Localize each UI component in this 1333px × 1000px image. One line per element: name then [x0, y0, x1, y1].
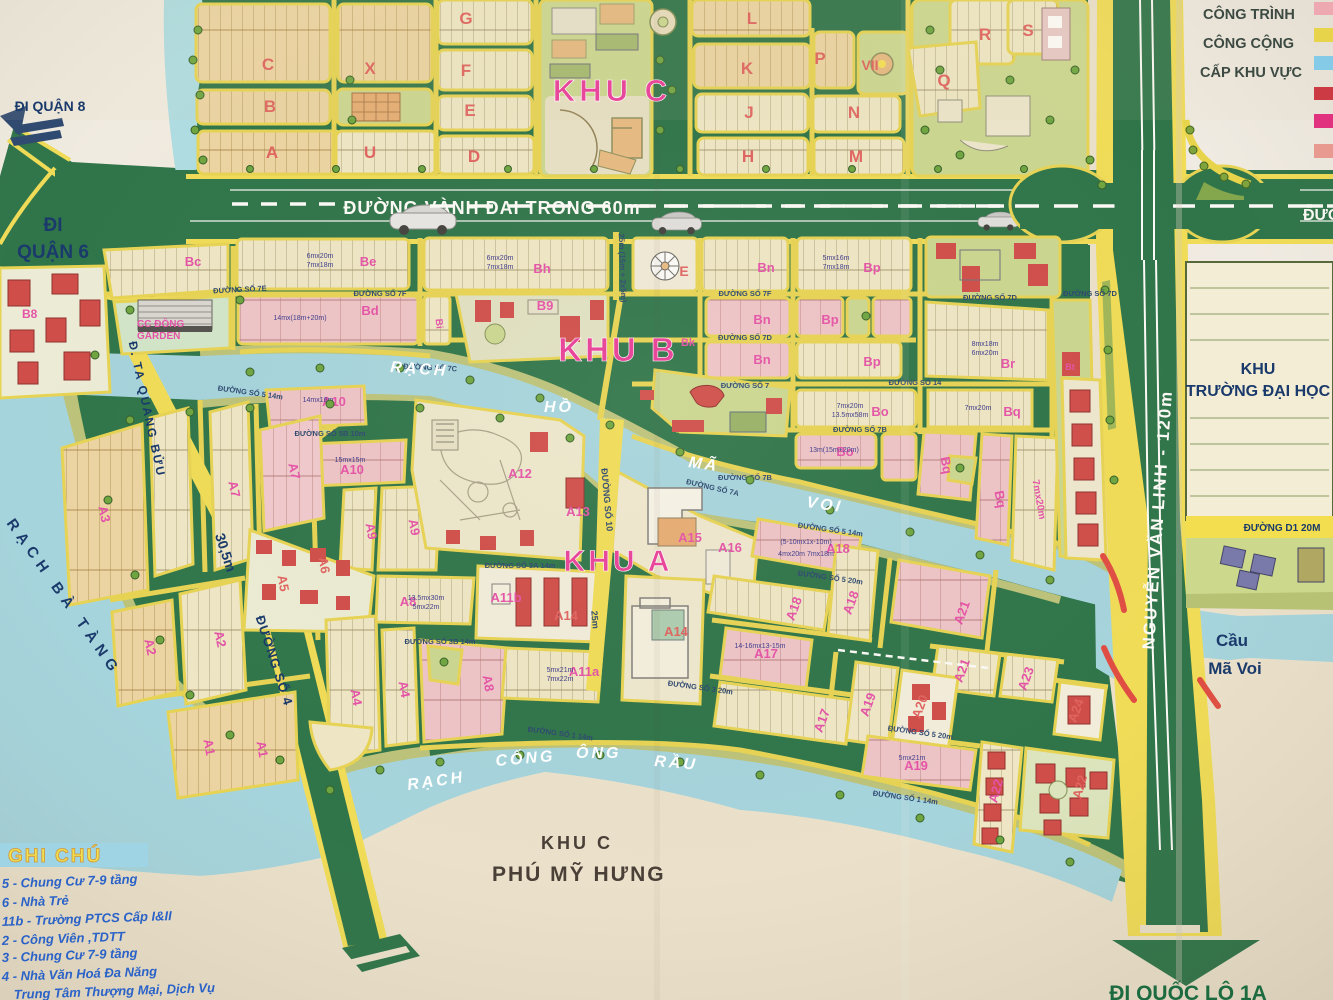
- svg-text:6 - Nhà Trẻ: 6 - Nhà Trẻ: [2, 893, 69, 910]
- svg-text:KHU C: KHU C: [541, 833, 613, 853]
- svg-text:KHU B: KHU B: [558, 331, 678, 368]
- svg-text:QUẬN 6: QUẬN 6: [17, 241, 89, 263]
- svg-text:ĐI QUỐC LỘ 1A: ĐI QUỐC LỘ 1A: [1109, 981, 1267, 1000]
- svg-text:Mã Voi: Mã Voi: [1208, 659, 1262, 678]
- svg-text:HỒ: HỒ: [544, 397, 574, 416]
- svg-text:CÔNG TRÌNH: CÔNG TRÌNH: [1203, 5, 1295, 23]
- svg-text:ĐI: ĐI: [44, 215, 63, 236]
- svg-text:GHI CHÚ: GHI CHÚ: [8, 845, 102, 867]
- svg-text:CẤP KHU VỰC: CẤP KHU VỰC: [1200, 64, 1303, 81]
- svg-text:PHÚ MỸ HƯNG: PHÚ MỸ HƯNG: [492, 862, 666, 886]
- svg-text:ĐƯỜNG D1 20M: ĐƯỜNG D1 20M: [1244, 521, 1321, 534]
- svg-text:CÔNG CỘNG: CÔNG CỘNG: [1203, 34, 1294, 52]
- svg-text:ĐI QUẬN 8: ĐI QUẬN 8: [15, 97, 86, 114]
- svg-text:KHU C: KHU C: [553, 73, 671, 108]
- svg-text:Cầu: Cầu: [1216, 631, 1248, 650]
- svg-text:TRƯỜNG ĐẠI HỌC: TRƯỜNG ĐẠI HỌC: [1186, 381, 1331, 400]
- svg-text:ÔNG: ÔNG: [576, 743, 621, 762]
- svg-text:KHU A: KHU A: [564, 545, 673, 578]
- svg-text:KHU: KHU: [1241, 361, 1276, 378]
